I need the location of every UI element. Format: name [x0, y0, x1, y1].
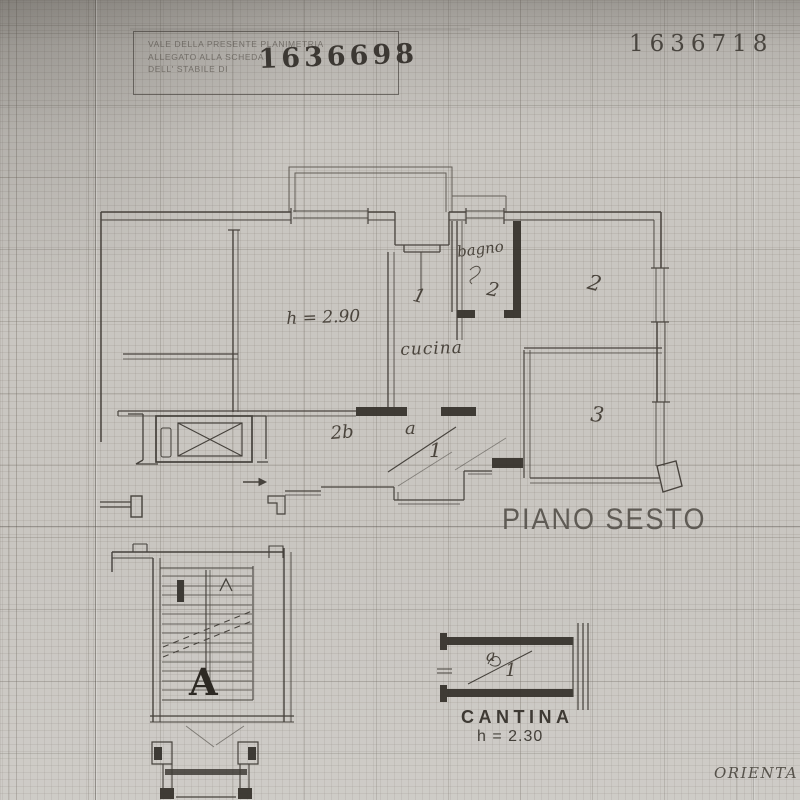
elevator-door: [161, 428, 171, 457]
stair-letter: A: [189, 660, 218, 704]
unit-fraction-numerator: a: [405, 418, 416, 439]
elevator-cross-icon: [178, 423, 242, 456]
wall-end-cap: [657, 461, 682, 492]
orientation-label: ORIENTA: [714, 764, 798, 782]
cellar-unit-denominator: 1: [505, 660, 516, 681]
cellar-title: CANTINA: [461, 707, 574, 728]
loggia-recess: [395, 212, 449, 292]
scanned-floor-plan-page: VALE DELLA PRESENTE PLANIMETRIA ALLEGATO…: [0, 0, 800, 800]
room-three-number: 3: [589, 402, 605, 427]
balcony-outline: [289, 167, 506, 212]
kitchen-label: cucina: [400, 338, 463, 360]
hall-number: 2b: [330, 421, 354, 444]
floor-plan-linework: [0, 0, 800, 800]
stamp-number: 1636698: [258, 38, 419, 75]
elevator: [128, 414, 268, 464]
entry-arrow-icon: [259, 479, 266, 486]
stair-cut-line: [163, 611, 252, 657]
door-jamb: [131, 496, 142, 517]
cellar-height-note: h = 2.30: [477, 728, 543, 746]
cellar-unit-numerator: a: [486, 646, 496, 665]
unit-fraction-denominator: 1: [429, 438, 442, 462]
interior-walls: [118, 221, 662, 483]
ceiling-height-note: h = 2.90: [286, 306, 361, 329]
unit-fraction-slash: [468, 651, 532, 684]
door-swing-lines: [398, 438, 506, 486]
bathroom-flourish: [470, 266, 480, 284]
floor-title: PIANO SESTO: [502, 503, 707, 536]
document-serial-number: 1636718: [629, 31, 773, 57]
unit-fraction-slash: [388, 427, 456, 472]
wall-hatch-lines: [578, 623, 588, 710]
stair-up-arrow-icon: [220, 579, 232, 591]
door-jamb: [177, 580, 184, 602]
exterior-walls: [101, 212, 682, 492]
